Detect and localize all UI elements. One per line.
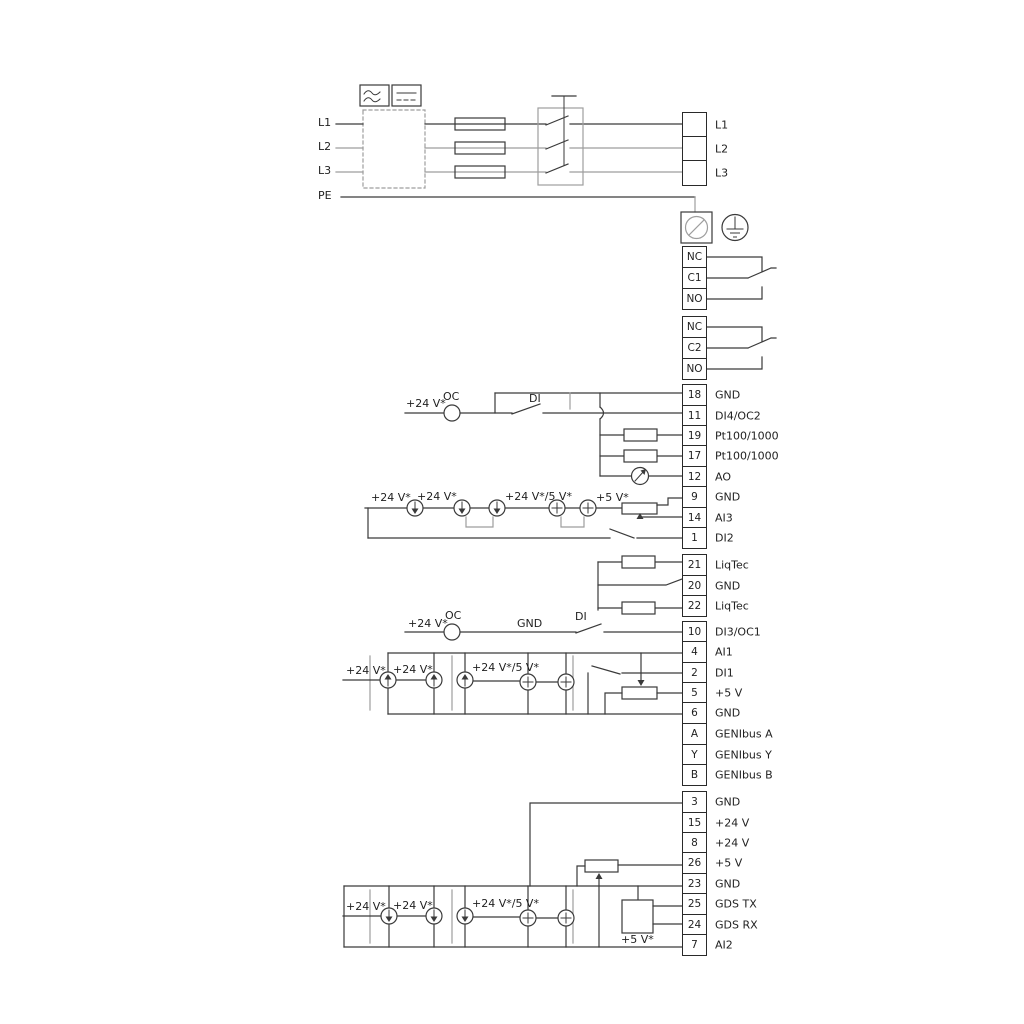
terminal-cell: NO — [682, 358, 707, 380]
supply-label: +24 V* — [346, 901, 386, 912]
supply-label: +24 V* — [393, 664, 433, 675]
terminal-row: 20GND — [682, 575, 852, 595]
supply-label: +24 V* — [417, 491, 457, 502]
pt100-resistor-17 — [600, 450, 682, 462]
terminal-cell: 10 — [682, 621, 707, 643]
terminal-row: 4AI1 — [682, 642, 852, 662]
terminal-label: GND — [715, 877, 740, 890]
supply-label: +5 V* — [596, 492, 629, 503]
power-input-label-l2: L2 — [318, 141, 331, 152]
terminal-row: NC — [682, 317, 852, 338]
terminal-strip-power-out: L1L2L3 — [682, 113, 852, 185]
terminal-cell: A — [682, 723, 707, 745]
power-lines — [336, 124, 682, 172]
supply-label: +24 V* — [346, 665, 386, 676]
terminal-label: Pt100/1000 — [715, 429, 779, 442]
power-input-label-l1: L1 — [318, 117, 331, 128]
terminal-row: 15+24 V — [682, 812, 852, 832]
terminal-cell: NC — [682, 246, 707, 268]
terminal-label: +5 V — [715, 857, 742, 870]
terminal-row: 25GDS TX — [682, 894, 852, 914]
terminal-row: C1 — [682, 268, 852, 289]
supply-label: +24 V* — [408, 618, 448, 629]
supply-label: +24 V* — [406, 398, 446, 409]
terminal-label: GND — [715, 491, 740, 504]
terminal-strip-io1: 18GND11DI4/OC219Pt100/100017Pt100/100012… — [682, 385, 852, 548]
supply-label: +24 V*/5 V* — [472, 662, 539, 673]
supply-label: +5 V* — [621, 934, 654, 945]
terminal-row: 3GND — [682, 792, 852, 812]
terminal-row: 23GND — [682, 874, 852, 894]
terminal-cell: 24 — [682, 914, 707, 936]
terminal-row: AGENIbus A — [682, 724, 852, 744]
terminal-row: 12AO — [682, 467, 852, 487]
terminal-row: NO — [682, 288, 852, 309]
terminal-label: GND — [715, 389, 740, 402]
terminal-label: GND — [715, 796, 740, 809]
terminal-cell: 26 — [682, 852, 707, 874]
terminal-cell: NC — [682, 316, 707, 338]
terminal-strip-relay1: NCC1NO — [682, 247, 852, 309]
terminal-label: DI3/OC1 — [715, 625, 761, 638]
terminal-row: 6GND — [682, 703, 852, 723]
terminal-cell: 6 — [682, 702, 707, 724]
terminal-cell: 11 — [682, 405, 707, 427]
terminal-cell: 17 — [682, 445, 707, 467]
digital-input-label: DI — [575, 611, 587, 622]
terminal-label: GENIbus Y — [715, 748, 772, 761]
terminal-row: YGENIbus Y — [682, 744, 852, 764]
terminal-cell — [682, 136, 707, 161]
supply-label: +24 V*/5 V* — [472, 898, 539, 909]
terminal-row: 14AI3 — [682, 507, 852, 527]
terminal-row: 8+24 V — [682, 833, 852, 853]
terminal-label: DI2 — [715, 531, 734, 544]
terminal-label: +5 V — [715, 686, 742, 699]
terminal-row: 22LiqTec — [682, 596, 852, 616]
supply-label: +24 V* — [371, 492, 411, 503]
terminal-cell: C2 — [682, 337, 707, 359]
terminal-cell: 8 — [682, 832, 707, 854]
open-collector-label: OC — [445, 610, 461, 621]
terminal-strip-genibus: AGENIbus AYGENIbus YBGENIbus B — [682, 724, 852, 785]
input-filter-box — [363, 110, 425, 188]
terminal-label: GND — [715, 579, 740, 592]
terminal-label: AI2 — [715, 938, 733, 951]
terminal-label: GENIbus B — [715, 768, 773, 781]
terminal-cell: 15 — [682, 812, 707, 834]
terminal-cell: 25 — [682, 893, 707, 915]
terminal-label: GDS TX — [715, 898, 757, 911]
terminal-cell: 20 — [682, 575, 707, 597]
terminal-label: +24 V — [715, 836, 749, 849]
terminal-cell: 12 — [682, 466, 707, 488]
terminal-row: 21LiqTec — [682, 555, 852, 575]
terminal-cell: 3 — [682, 791, 707, 813]
pe-screw-terminal-icon — [681, 212, 712, 243]
terminal-row: 10DI3/OC1 — [682, 622, 852, 642]
terminal-label: L2 — [715, 143, 728, 156]
terminal-row: 24GDS RX — [682, 914, 852, 934]
liqtec-sensor-circuit — [598, 556, 682, 614]
terminal-strip-ai1: 4AI12DI15+5 V6GND — [682, 642, 852, 724]
terminal-label: GENIbus A — [715, 728, 773, 741]
digital-input-label: DI — [529, 393, 541, 404]
terminal-cell — [682, 112, 707, 137]
terminal-row: 18GND — [682, 385, 852, 405]
terminal-row: 5+5 V — [682, 683, 852, 703]
terminal-cell: B — [682, 764, 707, 786]
terminal-cell: 4 — [682, 641, 707, 663]
terminal-label: AI3 — [715, 511, 733, 524]
supply-label: +24 V*/5 V* — [505, 491, 572, 502]
earth-ground-icon — [722, 215, 748, 241]
pe-line — [341, 197, 695, 212]
terminal-row: BGENIbus B — [682, 765, 852, 785]
sensor-network-ai3 — [365, 498, 682, 538]
terminal-cell: 23 — [682, 873, 707, 895]
dc-symbol-box — [392, 85, 421, 106]
terminal-row: 7AI2 — [682, 935, 852, 955]
terminal-row: 17Pt100/1000 — [682, 446, 852, 466]
terminal-cell: 19 — [682, 425, 707, 447]
terminal-row: 11DI4/OC2 — [682, 405, 852, 425]
terminal-label: LiqTec — [715, 599, 749, 612]
terminal-row: 19Pt100/1000 — [682, 426, 852, 446]
ac-symbol-box — [360, 85, 389, 106]
terminal-row: L1 — [682, 113, 852, 137]
terminal-cell: NO — [682, 288, 707, 310]
terminal-cell: 7 — [682, 934, 707, 956]
terminal-cell: 1 — [682, 527, 707, 549]
terminal-label: AI1 — [715, 646, 733, 659]
terminal-strip-io2: 3GND15+24 V8+24 V26+5 V23GND25GDS TX24GD… — [682, 792, 852, 955]
terminal-strip-liqtec: 21LiqTec20GND22LiqTec — [682, 555, 852, 616]
power-input-label-l3: L3 — [318, 165, 331, 176]
terminal-cell: 22 — [682, 595, 707, 617]
terminal-cell: 2 — [682, 662, 707, 684]
open-collector-label: OC — [443, 391, 459, 402]
sensor-network-ai2 — [343, 803, 682, 947]
terminal-row: L2 — [682, 137, 852, 161]
terminal-row: C2 — [682, 338, 852, 359]
terminal-label: GDS RX — [715, 918, 758, 931]
terminal-strip-relay2: NCC2NO — [682, 317, 852, 379]
pt100-resistor-19 — [600, 429, 682, 441]
terminal-strip-di3: 10DI3/OC1 — [682, 622, 852, 642]
terminal-cell: 5 — [682, 682, 707, 704]
power-input-label-pe: PE — [318, 190, 332, 201]
terminal-label: GND — [715, 707, 740, 720]
terminal-row: 1DI2 — [682, 528, 852, 548]
terminal-row: 2DI1 — [682, 662, 852, 682]
supply-label: +24 V* — [393, 900, 433, 911]
terminal-cell: C1 — [682, 267, 707, 289]
terminal-label: DI1 — [715, 666, 734, 679]
terminal-row: NC — [682, 247, 852, 268]
analog-output-meter-icon — [600, 468, 682, 485]
terminal-cell: 18 — [682, 384, 707, 406]
terminal-cell: Y — [682, 744, 707, 766]
terminal-row: NO — [682, 358, 852, 379]
terminal-cell — [682, 160, 707, 185]
wiring-diagram-svg — [0, 0, 1024, 1024]
terminal-row: 9GND — [682, 487, 852, 507]
terminal-cell: 14 — [682, 507, 707, 529]
wiring-diagram-page: L1 L2 L3 PE +24 V* OC DI +24 V* +24 V* +… — [0, 0, 1024, 1024]
terminal-row: 26+5 V — [682, 853, 852, 873]
terminal-label: Pt100/1000 — [715, 450, 779, 463]
ground-label: GND — [517, 618, 542, 629]
terminal-label: +24 V — [715, 816, 749, 829]
terminal-label: L3 — [715, 167, 728, 180]
terminal-cell: 9 — [682, 486, 707, 508]
terminal-cell: 21 — [682, 554, 707, 576]
terminal-label: L1 — [715, 119, 728, 132]
terminal-label: DI4/OC2 — [715, 409, 761, 422]
terminal-label: LiqTec — [715, 559, 749, 572]
terminal-label: AO — [715, 470, 731, 483]
terminal-row: L3 — [682, 161, 852, 185]
